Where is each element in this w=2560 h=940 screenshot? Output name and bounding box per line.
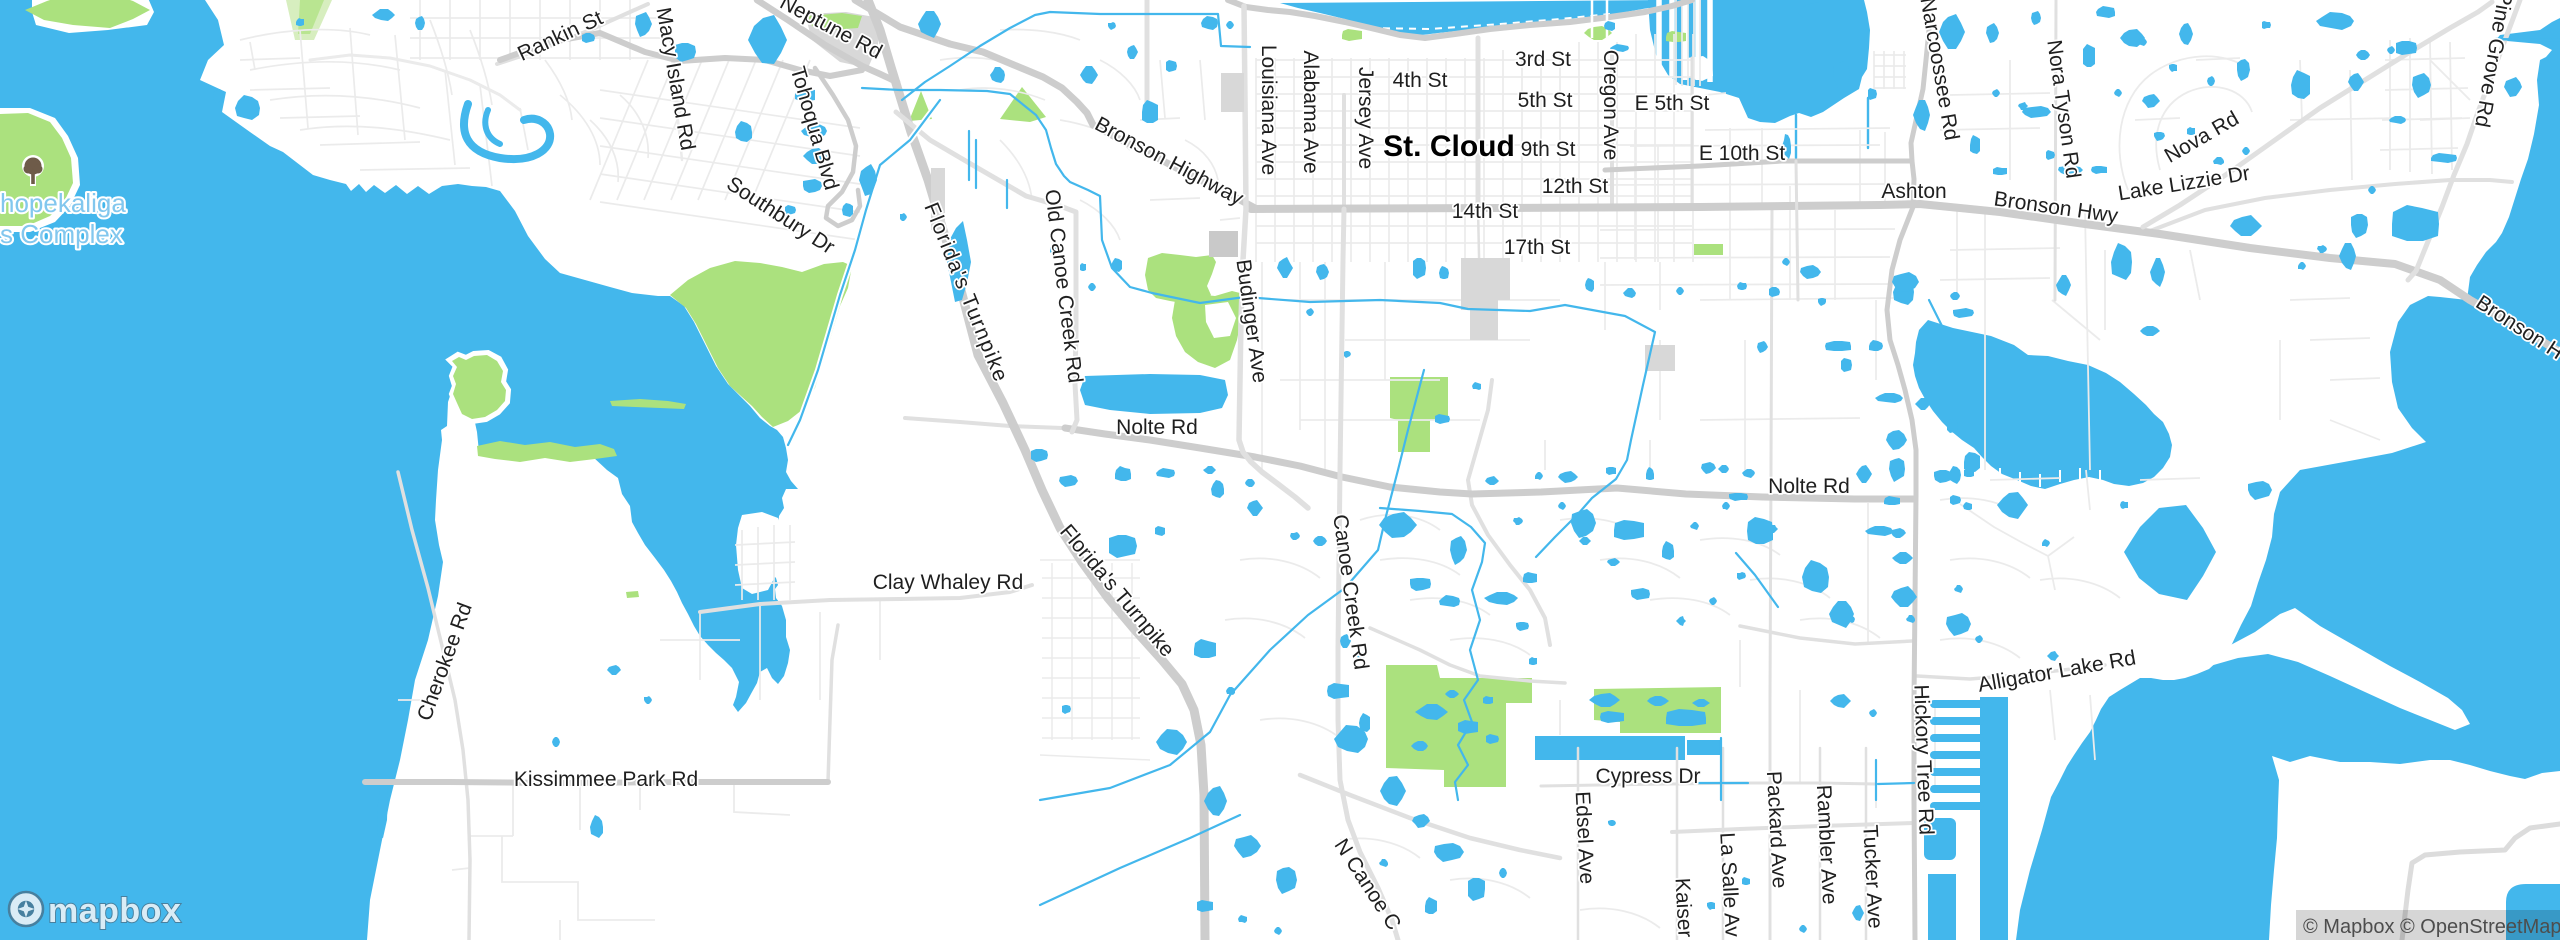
svg-text:4th St: 4th St: [1393, 69, 1448, 92]
svg-text:E 5th St: E 5th St: [1635, 92, 1710, 115]
svg-text:Clay Whaley Rd: Clay Whaley Rd: [873, 571, 1024, 594]
svg-text:© Mapbox © OpenStreetMap: © Mapbox © OpenStreetMap: [2303, 916, 2560, 938]
svg-text:Nolte Rd: Nolte Rd: [1116, 416, 1198, 439]
svg-text:Edsel Ave: Edsel Ave: [1571, 791, 1599, 885]
svg-text:Nolte Rd: Nolte Rd: [1768, 475, 1850, 498]
svg-text:Alabama Ave: Alabama Ave: [1299, 50, 1322, 173]
svg-text:Cypress Dr: Cypress Dr: [1595, 765, 1700, 788]
svg-text:Kaiser: Kaiser: [1670, 877, 1696, 938]
svg-text:3rd St: 3rd St: [1515, 48, 1571, 71]
svg-text:hopekaliga: hopekaliga: [0, 188, 126, 218]
svg-text:5th St: 5th St: [1518, 89, 1573, 112]
svg-text:Kissimmee Park Rd: Kissimmee Park Rd: [514, 768, 698, 791]
svg-text:17th St: 17th St: [1504, 236, 1571, 259]
svg-text:s Complex: s Complex: [0, 219, 123, 249]
svg-text:mapbox: mapbox: [48, 892, 181, 930]
svg-text:14th St: 14th St: [1452, 200, 1519, 223]
svg-text:Jersey Ave: Jersey Ave: [1354, 67, 1377, 169]
svg-text:9th St: 9th St: [1521, 138, 1576, 161]
svg-text:E 10th St: E 10th St: [1699, 142, 1786, 165]
svg-text:St. Cloud: St. Cloud: [1383, 130, 1515, 163]
svg-text:Oregon Ave: Oregon Ave: [1599, 50, 1622, 161]
svg-text:Louisiana Ave: Louisiana Ave: [1257, 45, 1280, 175]
svg-text:12th St: 12th St: [1542, 175, 1609, 198]
svg-text:Ashton: Ashton: [1881, 180, 1946, 203]
